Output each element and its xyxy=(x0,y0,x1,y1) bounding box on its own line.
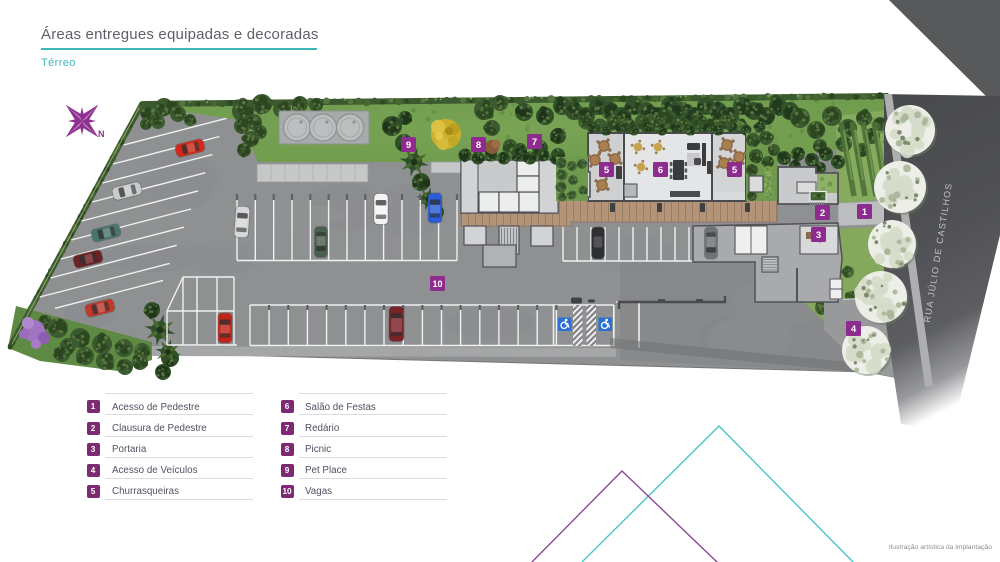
svg-text:9: 9 xyxy=(406,140,411,151)
svg-text:N: N xyxy=(98,129,105,139)
svg-text:8: 8 xyxy=(476,140,481,151)
svg-text:1: 1 xyxy=(862,207,868,218)
svg-text:5: 5 xyxy=(604,165,610,176)
svg-text:5: 5 xyxy=(732,165,738,176)
svg-text:2: 2 xyxy=(820,208,825,219)
svg-text:7: 7 xyxy=(532,137,537,148)
svg-text:6: 6 xyxy=(658,165,663,176)
svg-text:10: 10 xyxy=(432,279,442,289)
svg-text:3: 3 xyxy=(816,230,821,241)
svg-text:4: 4 xyxy=(851,324,857,335)
